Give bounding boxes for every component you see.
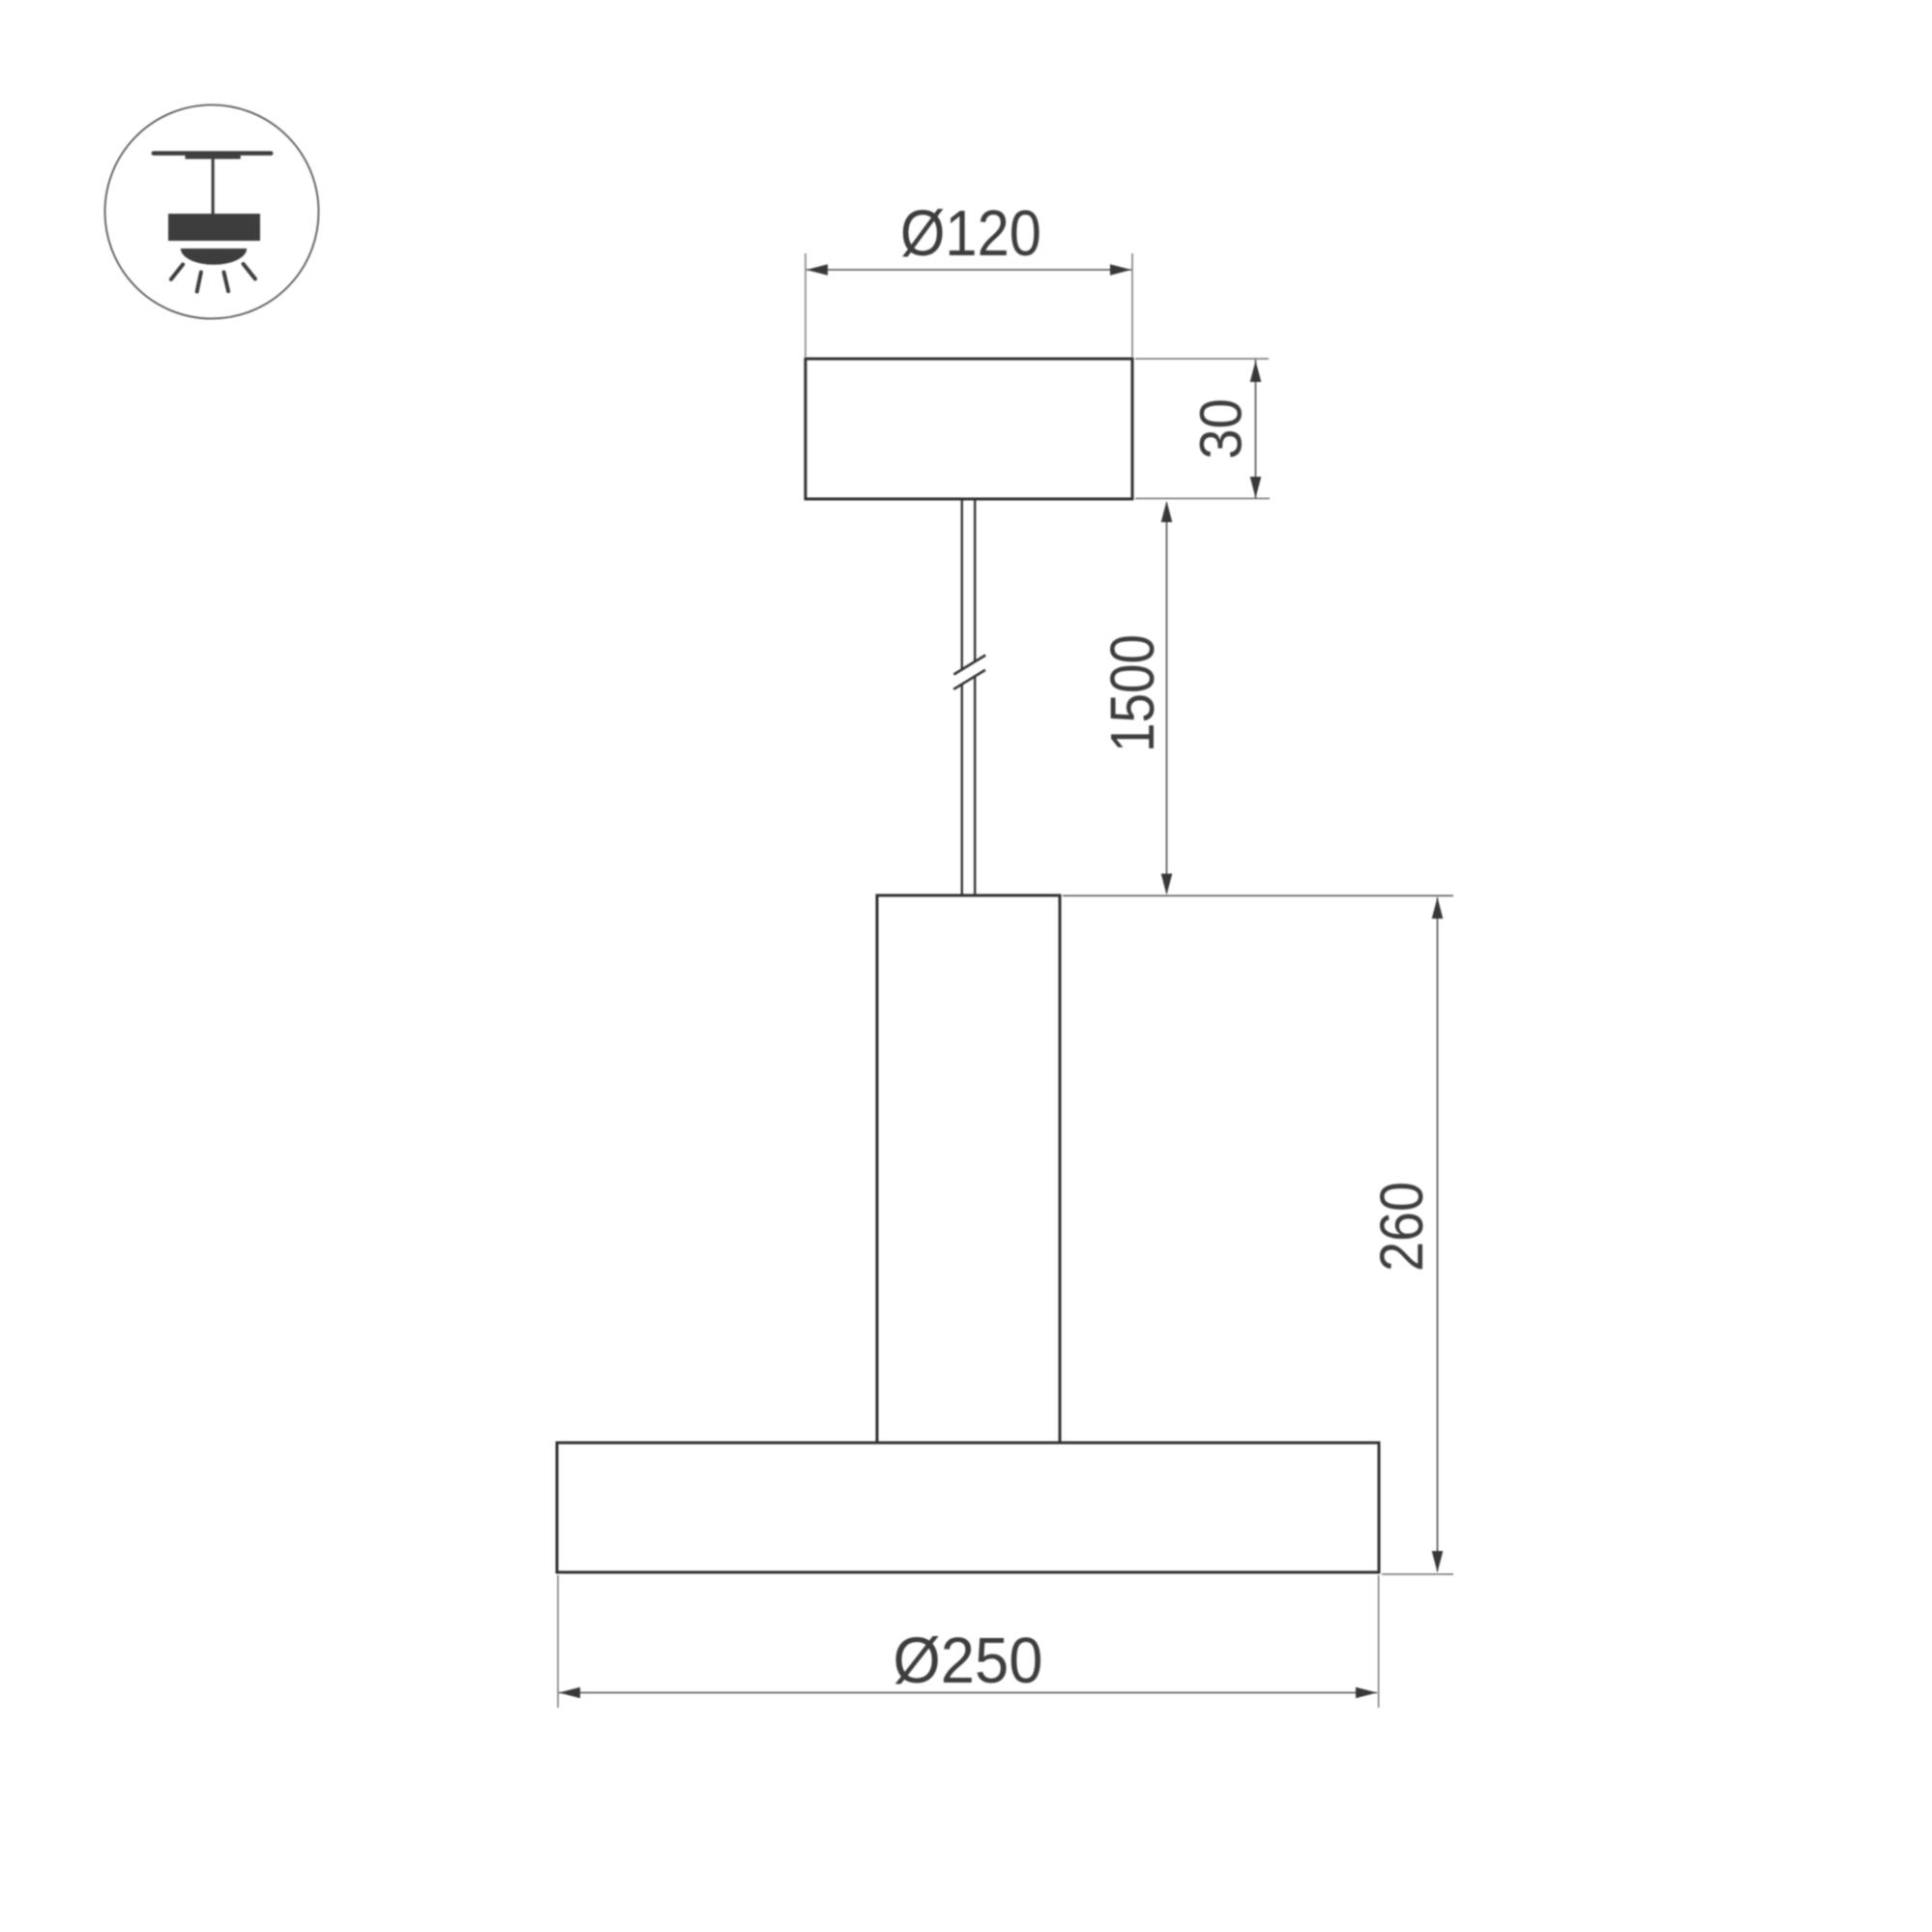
svg-text:Ø250: Ø250	[893, 1625, 1043, 1697]
svg-text:1500: 1500	[1098, 634, 1167, 752]
svg-text:260: 260	[1368, 1182, 1436, 1272]
svg-text:30: 30	[1188, 398, 1255, 459]
svg-text:Ø120: Ø120	[900, 197, 1041, 270]
